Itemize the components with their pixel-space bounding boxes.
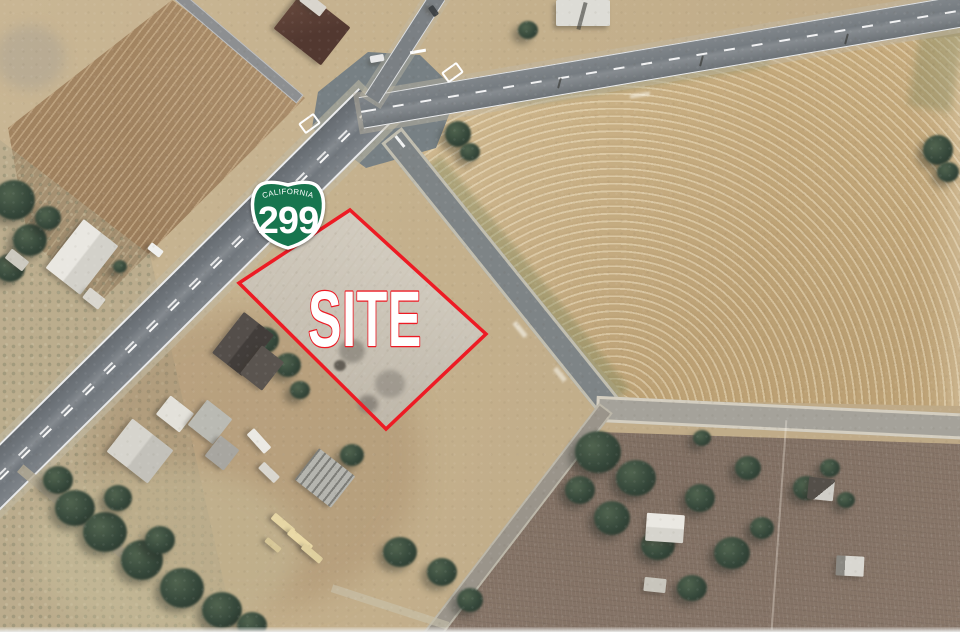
site-label: SITE <box>308 274 422 363</box>
aerial-map: SITE CALIFORNIA 299 <box>0 0 960 632</box>
site-annotation-layer: SITE CALIFORNIA 299 <box>0 0 960 632</box>
route-299-shield: CALIFORNIA 299 <box>252 182 323 248</box>
route-shield-number: 299 <box>258 200 318 242</box>
